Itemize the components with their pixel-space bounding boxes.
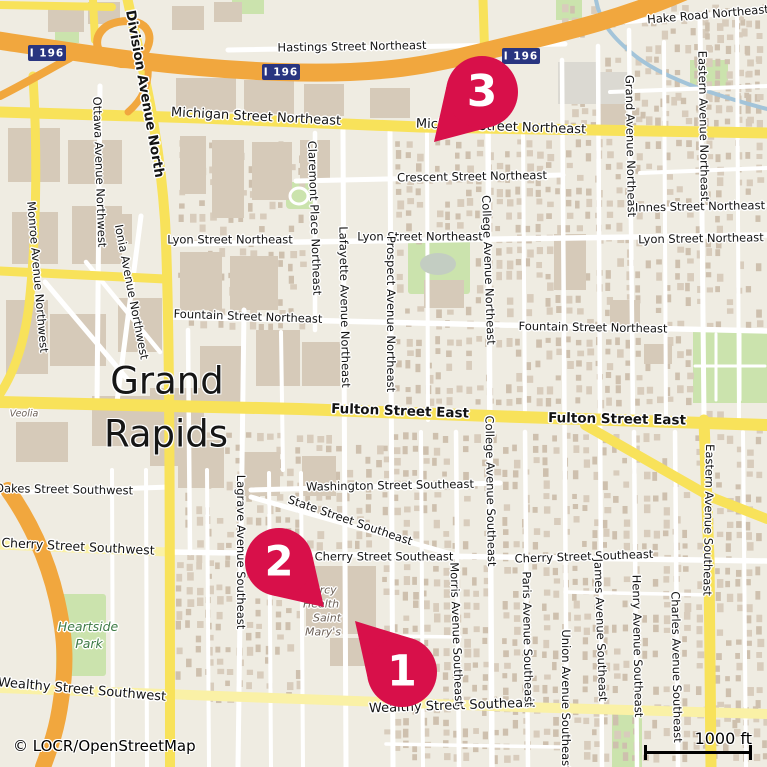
scale-bar-label: 1000 ft — [644, 729, 754, 748]
scale-bar: 1000 ft — [644, 729, 754, 754]
map-base-layer — [0, 0, 767, 767]
road-college-north — [483, 0, 487, 128]
scale-bar-line — [644, 751, 752, 754]
map-attribution: © LOCR/OpenStreetMap — [13, 737, 196, 755]
road-eastern-avenue-southeast — [704, 420, 711, 767]
road-stub-north — [93, 0, 95, 40]
map-canvas[interactable]: Grand Rapids Hake Road NortheastHastings… — [0, 0, 767, 767]
